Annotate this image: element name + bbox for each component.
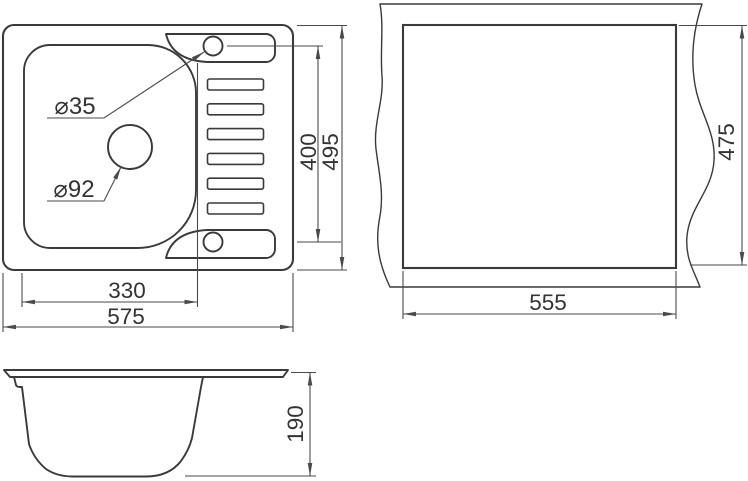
drainer-slat — [208, 203, 264, 214]
drainer-slat — [208, 178, 264, 189]
countertop-cutout-view: 475 555 — [375, 4, 747, 319]
sink-technical-drawing: ⌀35 ⌀92 330 575 400 — [0, 0, 748, 481]
drainer-slats — [208, 79, 264, 214]
faucet-hole-top — [204, 37, 223, 56]
label-cutout-width: 555 — [529, 290, 567, 315]
callout-faucet-diameter: ⌀35 — [47, 52, 204, 120]
drainer-slat — [208, 129, 264, 140]
drainer-slat — [208, 104, 264, 115]
label-overall-depth: 495 — [318, 133, 343, 171]
faucet-ledge-top — [166, 34, 275, 62]
dimension-bowl-height: 190 — [185, 373, 316, 477]
dimension-cutout-width: 555 — [403, 271, 676, 319]
bowl-outline — [24, 45, 196, 248]
rim-profile — [4, 370, 288, 377]
countertop-outline — [375, 4, 714, 287]
cutout-rectangle — [403, 25, 676, 268]
label-overall-width: 575 — [107, 304, 145, 329]
bowl-profile — [14, 377, 203, 477]
sink-side-view: 190 — [4, 370, 316, 477]
label-bowl-width: 330 — [108, 278, 146, 303]
faucet-hole-bottom — [204, 233, 223, 252]
label-cutout-depth: 475 — [714, 123, 739, 161]
drainer-slat — [208, 79, 264, 90]
drainer-slat — [208, 153, 264, 164]
callout-drain-diameter: ⌀92 — [47, 167, 121, 203]
label-drain-diameter: ⌀92 — [53, 176, 94, 203]
label-faucet-diameter: ⌀35 — [54, 93, 95, 120]
faucet-ledge-bottom — [166, 230, 275, 258]
drain-hole — [108, 125, 152, 169]
label-bowl-height: 190 — [283, 405, 308, 443]
drawing-svg: ⌀35 ⌀92 330 575 400 — [0, 0, 748, 481]
sink-top-view: ⌀35 ⌀92 330 575 400 — [3, 25, 347, 332]
